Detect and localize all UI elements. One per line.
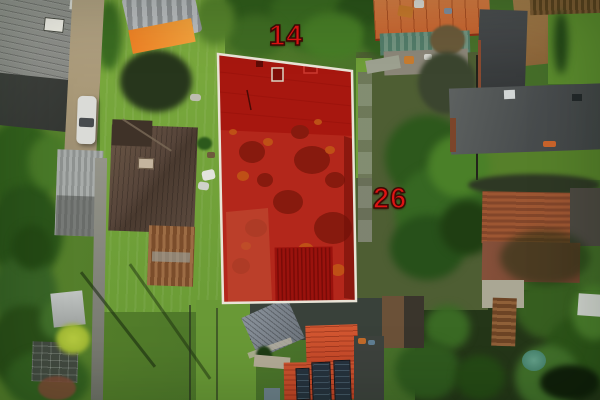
parcel-shed-roof	[275, 246, 334, 302]
aerial-photo: 14 26	[0, 0, 600, 400]
street-number-label: 26	[373, 185, 407, 214]
parcel-highlight-area	[210, 45, 365, 310]
parcel-number-label: 14	[269, 22, 303, 51]
roof-skylight	[272, 68, 283, 81]
parcel-yard-path	[226, 208, 272, 302]
parcel-overlay	[0, 0, 600, 400]
parcel-main-roof	[218, 54, 354, 136]
roof-chimney	[256, 61, 263, 67]
